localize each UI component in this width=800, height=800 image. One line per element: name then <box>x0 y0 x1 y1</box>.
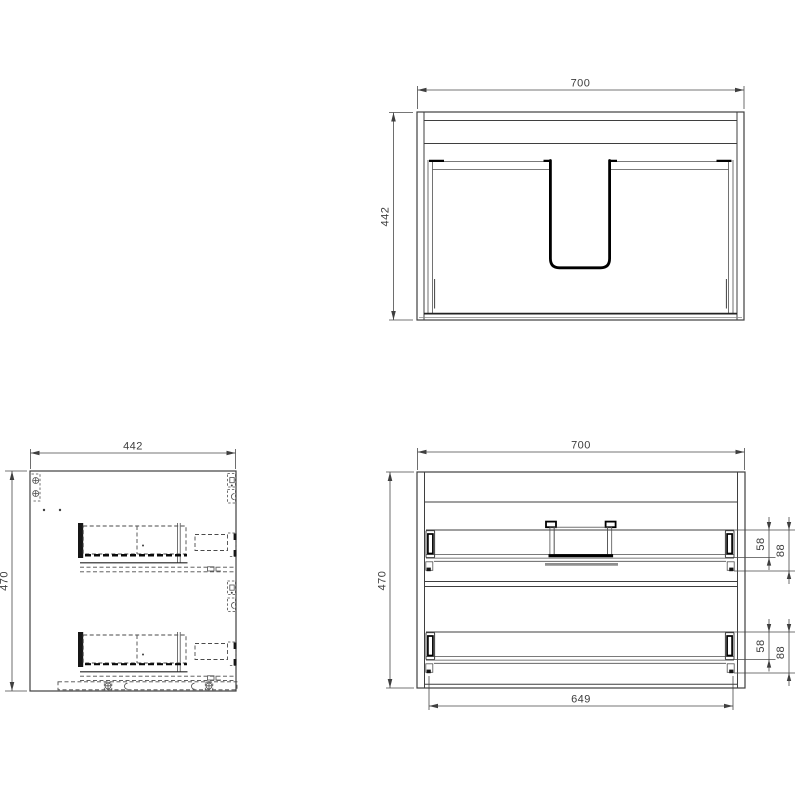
plan-width-dimension: 700 <box>418 78 745 110</box>
front-height-dimension: 470 <box>377 472 415 688</box>
side-wall-bracket-middle-right <box>228 581 236 612</box>
lower-drawer-side-height-label: 58 <box>755 639 767 652</box>
front-upper-drawer-dimensions: 58 88 <box>734 517 795 584</box>
front-runner-length-label: 649 <box>571 694 591 706</box>
lower-drawer-total-height-label: 88 <box>775 646 787 659</box>
side-upper-drawer-runner-hidden <box>78 523 237 572</box>
side-height-label: 470 <box>0 571 11 591</box>
front-width-label: 700 <box>571 440 591 452</box>
drawing-sheet: 700 442 442 <box>0 0 800 800</box>
plan-width-label: 700 <box>571 78 591 90</box>
cad-drawing-canvas: 700 442 442 <box>0 0 800 800</box>
side-width-label: 442 <box>123 441 143 453</box>
upper-drawer-total-height-label: 88 <box>775 544 787 557</box>
plan-cabinet-outline <box>417 112 744 320</box>
front-view: 700 470 649 <box>377 440 796 711</box>
front-lower-drawer-dimensions: 58 88 <box>734 619 795 686</box>
upper-drawer-side-height-label: 58 <box>755 537 767 550</box>
plan-view: 700 442 <box>380 78 745 321</box>
side-wall-bracket-top-left <box>32 474 41 501</box>
front-lower-drawer: 58 88 <box>426 619 795 686</box>
side-dowel-mark <box>43 509 45 511</box>
side-cabinet-outline <box>30 471 236 691</box>
plan-plumbing-cutout <box>550 161 609 268</box>
front-height-label: 470 <box>377 571 389 591</box>
front-cabinet-outline <box>417 472 745 688</box>
plan-drawer-box <box>419 160 742 318</box>
plan-depth-dimension: 442 <box>380 113 414 321</box>
side-bottom-rail-hidden <box>58 682 237 690</box>
side-view: 442 470 <box>0 441 237 692</box>
side-width-dimension: 442 <box>31 441 236 470</box>
side-height-dimension: 470 <box>0 471 27 691</box>
front-upper-drawer: 58 88 <box>426 517 795 584</box>
side-lower-drawer-runner-hidden <box>78 632 237 680</box>
plan-depth-label: 442 <box>380 207 392 227</box>
side-dowel-mark <box>59 509 61 511</box>
side-wall-bracket-top-right <box>228 474 236 504</box>
front-runner-length-dimension: 649 <box>429 676 733 710</box>
front-width-dimension: 700 <box>418 440 745 471</box>
